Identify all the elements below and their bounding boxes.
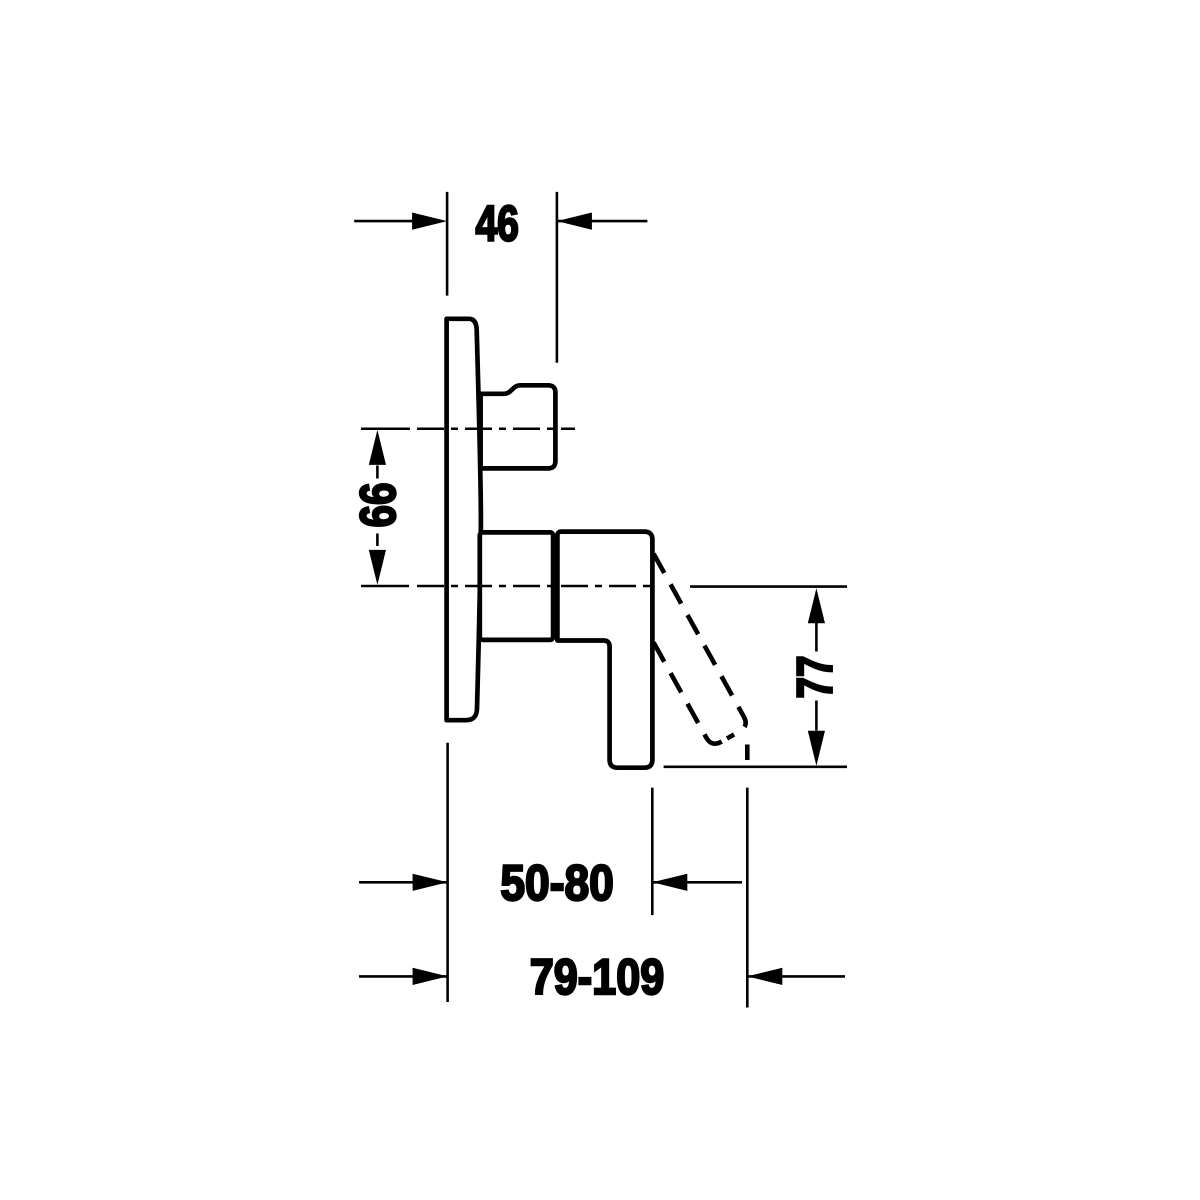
svg-text:50-80: 50-80: [500, 855, 614, 911]
svg-text:66: 66: [350, 483, 406, 528]
svg-text:77: 77: [787, 656, 843, 699]
svg-text:46: 46: [475, 196, 519, 252]
svg-text:79-109: 79-109: [530, 949, 665, 1005]
